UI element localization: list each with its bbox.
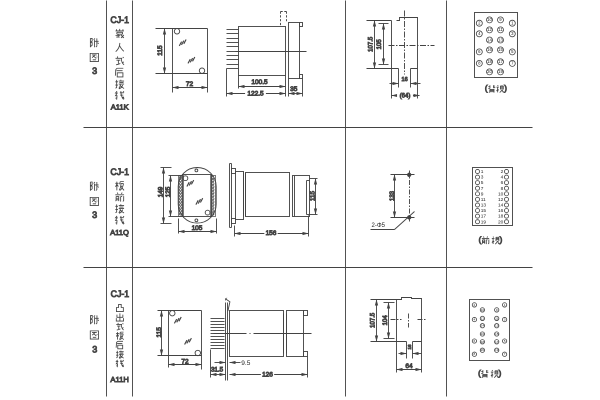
svg-text:(64): (64) <box>400 93 411 99</box>
svg-text:20: 20 <box>487 69 492 74</box>
svg-text:12: 12 <box>487 27 492 32</box>
svg-text:8: 8 <box>501 186 504 192</box>
svg-text:4: 4 <box>474 318 476 322</box>
svg-text:6: 6 <box>501 180 504 186</box>
svg-text:10: 10 <box>498 191 504 197</box>
svg-text:13: 13 <box>495 324 499 328</box>
svg-text:105: 105 <box>192 225 203 232</box>
svg-text:16: 16 <box>481 332 485 336</box>
svg-text:122.5: 122.5 <box>247 91 264 98</box>
svg-text:3: 3 <box>481 175 484 181</box>
svg-text:13: 13 <box>498 37 503 42</box>
svg-text:9: 9 <box>496 308 498 312</box>
svg-text:20: 20 <box>481 348 485 352</box>
svg-text:16: 16 <box>487 47 492 52</box>
svg-text:A11K: A11K <box>111 103 129 112</box>
svg-text:2: 2 <box>474 303 476 307</box>
svg-text:64: 64 <box>405 363 413 370</box>
svg-text:10: 10 <box>481 308 485 312</box>
svg-text:115: 115 <box>156 327 163 338</box>
svg-text:125: 125 <box>165 186 172 197</box>
svg-text:CJ-1: CJ-1 <box>110 167 129 177</box>
svg-text:7: 7 <box>504 352 506 356</box>
svg-text:104: 104 <box>383 315 389 326</box>
svg-text:CJ-1: CJ-1 <box>111 289 130 299</box>
svg-text:19: 19 <box>498 69 503 74</box>
svg-text:11: 11 <box>481 197 486 203</box>
svg-text:2-Φ5: 2-Φ5 <box>372 223 386 229</box>
svg-text:15: 15 <box>481 208 487 214</box>
svg-text:20: 20 <box>498 219 504 225</box>
svg-text:100.5: 100.5 <box>251 79 268 86</box>
svg-text:31.5: 31.5 <box>211 367 224 374</box>
svg-text:107.5: 107.5 <box>369 36 375 52</box>
svg-text:35: 35 <box>290 86 298 93</box>
svg-text:115: 115 <box>157 45 164 56</box>
svg-text:7: 7 <box>481 186 484 192</box>
svg-text:126: 126 <box>262 372 273 379</box>
svg-text:(: ( <box>479 236 482 245</box>
svg-text:5: 5 <box>481 180 484 186</box>
svg-text:17: 17 <box>498 59 503 64</box>
svg-text:72: 72 <box>181 358 189 365</box>
svg-text:(: ( <box>485 84 488 93</box>
svg-text:19: 19 <box>495 348 499 352</box>
svg-text:18: 18 <box>498 214 504 220</box>
svg-text:): ) <box>499 369 502 378</box>
svg-text:15: 15 <box>498 47 503 52</box>
svg-text:16: 16 <box>498 208 504 214</box>
svg-text:17: 17 <box>481 214 487 220</box>
svg-text:12: 12 <box>481 316 485 320</box>
svg-text:19: 19 <box>481 219 487 225</box>
svg-text:): ) <box>504 84 507 93</box>
svg-text:1: 1 <box>481 169 484 175</box>
svg-text:2: 2 <box>501 169 504 175</box>
svg-text:18: 18 <box>487 59 492 64</box>
svg-text:3: 3 <box>92 344 97 354</box>
svg-text:14: 14 <box>498 203 504 209</box>
svg-text:14: 14 <box>487 37 492 42</box>
svg-text:CJ-1: CJ-1 <box>110 15 129 25</box>
svg-text:115: 115 <box>310 190 317 201</box>
svg-text:149: 149 <box>158 186 165 197</box>
svg-text:5: 5 <box>504 339 506 343</box>
svg-text:11: 11 <box>495 316 498 320</box>
svg-text:): ) <box>500 236 503 245</box>
svg-text:14: 14 <box>481 324 485 328</box>
svg-text:(: ( <box>478 369 481 378</box>
svg-text:6: 6 <box>474 339 476 343</box>
svg-text:15: 15 <box>495 332 499 336</box>
svg-text:18: 18 <box>481 340 485 344</box>
svg-text:4: 4 <box>501 175 504 181</box>
svg-text:13: 13 <box>481 203 487 209</box>
svg-text:12: 12 <box>498 197 504 203</box>
svg-text:A11Q: A11Q <box>110 228 129 237</box>
svg-text:8: 8 <box>474 352 476 356</box>
svg-text:11: 11 <box>498 27 503 32</box>
svg-text:72: 72 <box>186 81 194 88</box>
svg-text:17: 17 <box>495 340 499 344</box>
svg-text:107.5: 107.5 <box>370 312 376 328</box>
svg-text:105: 105 <box>377 39 383 50</box>
svg-text:133: 133 <box>390 190 396 201</box>
svg-text:3: 3 <box>92 66 97 76</box>
svg-text:1: 1 <box>504 303 506 307</box>
svg-text:3: 3 <box>92 210 97 220</box>
svg-text:A11H: A11H <box>110 375 128 384</box>
svg-text:9: 9 <box>481 191 484 197</box>
svg-text:16: 16 <box>407 344 412 350</box>
svg-text:156: 156 <box>266 230 277 237</box>
svg-text:16: 16 <box>402 77 408 83</box>
svg-text:9.5: 9.5 <box>241 360 250 367</box>
svg-text:10: 10 <box>487 17 492 22</box>
svg-text:3: 3 <box>504 318 506 322</box>
